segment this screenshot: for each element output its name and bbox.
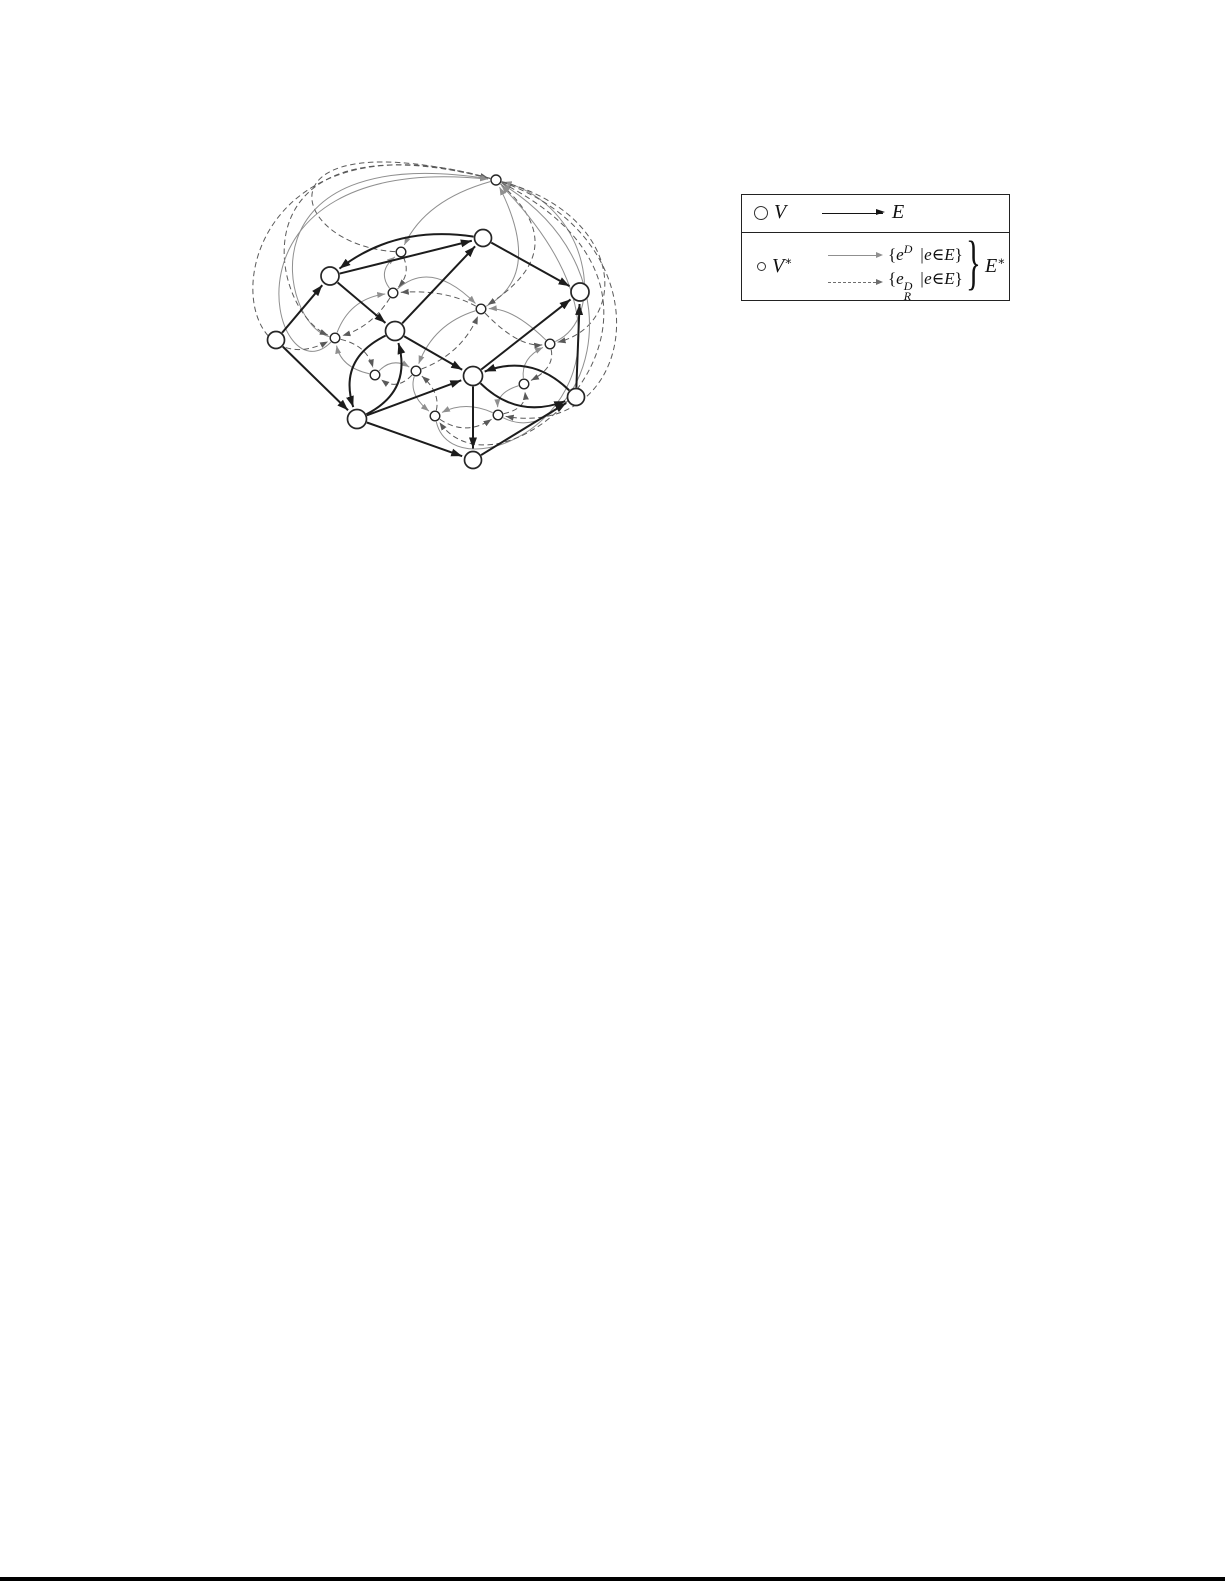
dual-edge-solid [379,363,409,371]
legend-vstar-label: V∗ [772,254,792,278]
dual-edge-dashed [381,375,412,384]
primal-edge [481,299,570,369]
legend-dual-dashed-arrow-icon [828,282,881,283]
legend-estar-label: E∗ [985,254,1005,278]
dual-node [388,288,398,298]
legend-grouping-brace: } [966,228,981,298]
legend-e-label: E [892,201,904,224]
primal-edge [283,347,348,411]
primal-node [464,367,483,386]
dual-node [519,379,529,389]
dual-edge-solid [292,173,488,336]
dual-edge-solid [279,177,488,352]
dual-node [476,304,486,314]
dual-node [493,410,503,420]
legend-primal-edge-arrow-icon [822,213,883,214]
legend-vertex-circle-icon [754,206,768,220]
dual-edge-dashed [440,419,492,428]
primal-edge [339,234,473,268]
primal-node [571,283,589,301]
dual-edge-dashed [341,339,373,367]
dual-edge-dashed [504,392,525,414]
primal-edge [350,336,386,407]
dual-node [370,370,380,380]
primal-node [321,267,339,285]
dual-node [545,339,555,349]
legend-dual-dashed-set-label: {eDR|e∈E} [888,269,963,301]
dual-edge-solid [442,407,493,413]
legend-dual-solid-set-label: {eD|e∈E} [888,242,963,265]
dual-edge-solid [523,347,543,378]
primal-node [465,452,482,469]
primal-node [475,230,492,247]
primal-edge [402,246,475,323]
primal-edge [282,285,322,333]
primal-edge [404,336,462,370]
primal-edge [481,403,566,455]
legend-v-label: V [774,201,786,224]
legend-box: V E V∗ {eD|e∈E} {eDR|e∈E} } E∗ [741,194,1010,301]
dual-node [411,366,421,376]
dual-node [491,175,501,185]
primal-edge [491,243,569,287]
dual-edge-solid [486,187,519,306]
dual-node [430,411,440,421]
dual-node [330,333,340,343]
dual-edge-dashed [284,165,490,335]
dual-edge-dashed [253,165,490,350]
legend-row-dual: V∗ {eD|e∈E} {eDR|e∈E} } E∗ [742,233,1009,300]
page: { "page": { "background": "#ffffff", "bo… [0,0,1225,1585]
dual-edge-solid [504,182,585,342]
bottom-page-rule [0,1577,1225,1581]
primal-node [348,410,367,429]
primal-node [568,389,585,406]
dual-edge-solid [397,277,475,304]
primal-edge [367,422,462,456]
dual-node [396,247,406,257]
legend-dual-solid-arrow-icon [828,255,881,256]
primal-node [386,322,405,341]
primal-node [268,332,285,349]
legend-dual-vertex-circle-icon [757,262,766,271]
graph-figure [0,0,1225,1585]
dual-edge-dashed [342,298,389,336]
